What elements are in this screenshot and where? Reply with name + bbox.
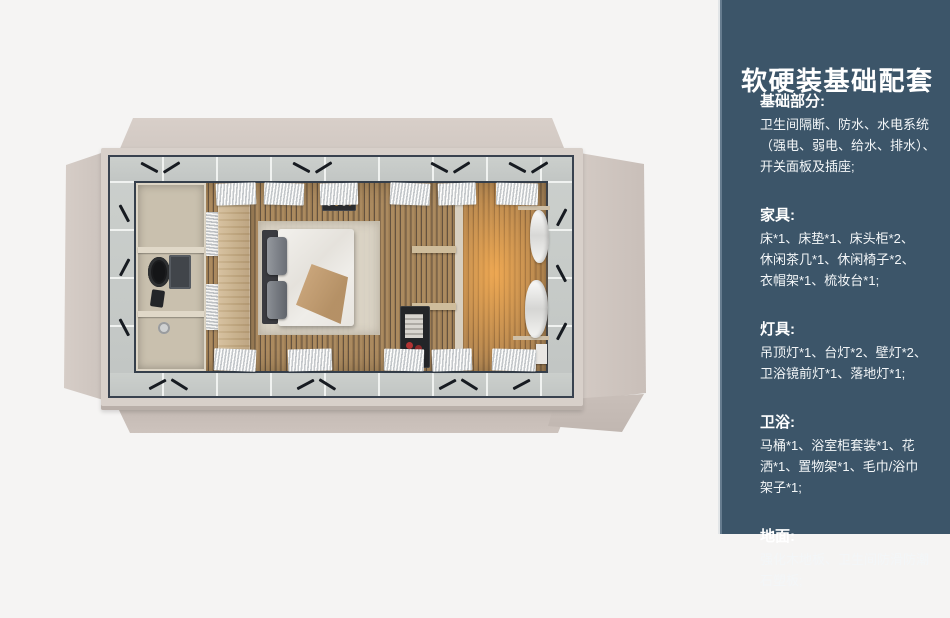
section-bathroom: 卫浴: 马桶*1、浴室柜套装*1、花 洒*1、置物架*1、毛巾/浴巾 架子*1; [760,411,944,498]
section-body: 床*1、床垫*1、床头柜*2、 休闲茶几*1、休闲椅子*2、 衣帽架*1、梳妆台… [760,228,944,291]
bathroom-vanity [169,255,191,289]
pleated-blind [216,182,257,205]
glass-band-right [548,181,572,373]
section-furniture: 家具: 床*1、床垫*1、床头柜*2、 休闲茶几*1、休闲椅子*2、 衣帽架*1… [760,204,944,291]
pleated-blind [320,183,358,206]
glass-band-top [110,157,572,181]
coat-rack-shelf [412,246,456,253]
pleated-blind [264,182,305,205]
curtain [530,210,549,263]
section-flooring: 地面: 强化木地板、卫生间防滑防潮 石塑板; [760,525,944,591]
section-basics: 基础部分: 卫生间隔断、防水、水电系统 （强电、弱电、给水、排水）、 开关面板及… [760,90,944,177]
pleated-blind [214,348,257,371]
section-heading: 家具: [760,204,944,225]
section-heading: 地面: [760,525,944,546]
pleated-blind [438,183,477,206]
curtain-rod [518,206,550,210]
bottom-wall-flap [118,408,568,433]
sidebar-sections: 基础部分: 卫生间隔断、防水、水电系统 （强电、弱电、给水、排水）、 开关面板及… [760,90,944,618]
pleated-blind [492,348,537,371]
bed-pillow [267,237,287,275]
info-sidebar: 软硬装基础配套 基础部分: 卫生间隔断、防水、水电系统 （强电、弱电、给水、排水… [718,0,950,534]
section-body: 马桶*1、浴室柜套装*1、花 洒*1、置物架*1、毛巾/浴巾 架子*1; [760,435,944,498]
section-lighting: 灯具: 吊顶灯*1、台灯*2、壁灯*2、 卫浴镜前灯*1、落地灯*1; [760,318,944,384]
floorplan-render [0,0,718,534]
coat-rack-wall [455,183,463,371]
toilet [150,289,165,308]
section-heading: 卫浴: [760,411,944,432]
section-heading: 基础部分: [760,90,944,111]
right-wall-flap [574,150,646,404]
section-body: 卫生间隔断、防水、水电系统 （强电、弱电、给水、排水）、 开关面板及插座; [760,114,944,177]
bathroom-shelf [138,311,204,317]
section-body: 吊顶灯*1、台灯*2、壁灯*2、 卫浴镜前灯*1、落地灯*1; [760,342,944,384]
pleated-blind [496,183,538,206]
bathroom-shelf [138,247,204,253]
wardrobe-panel-grain [218,203,250,352]
display-cabinet-shelf-contents [405,314,423,338]
pleated-blind [384,349,424,372]
pleated-blind [390,182,431,205]
pleated-blind [288,348,333,371]
section-body: 强化木地板、卫生间防滑防潮 石塑板; [760,549,944,591]
display-cabinet-decor [406,342,413,349]
pleated-blind [432,348,473,371]
vessel-sink [148,257,170,287]
bed-pillow [267,281,287,319]
bench-unit [536,344,547,364]
section-heading: 灯具: [760,318,944,339]
shower-head [158,322,170,334]
